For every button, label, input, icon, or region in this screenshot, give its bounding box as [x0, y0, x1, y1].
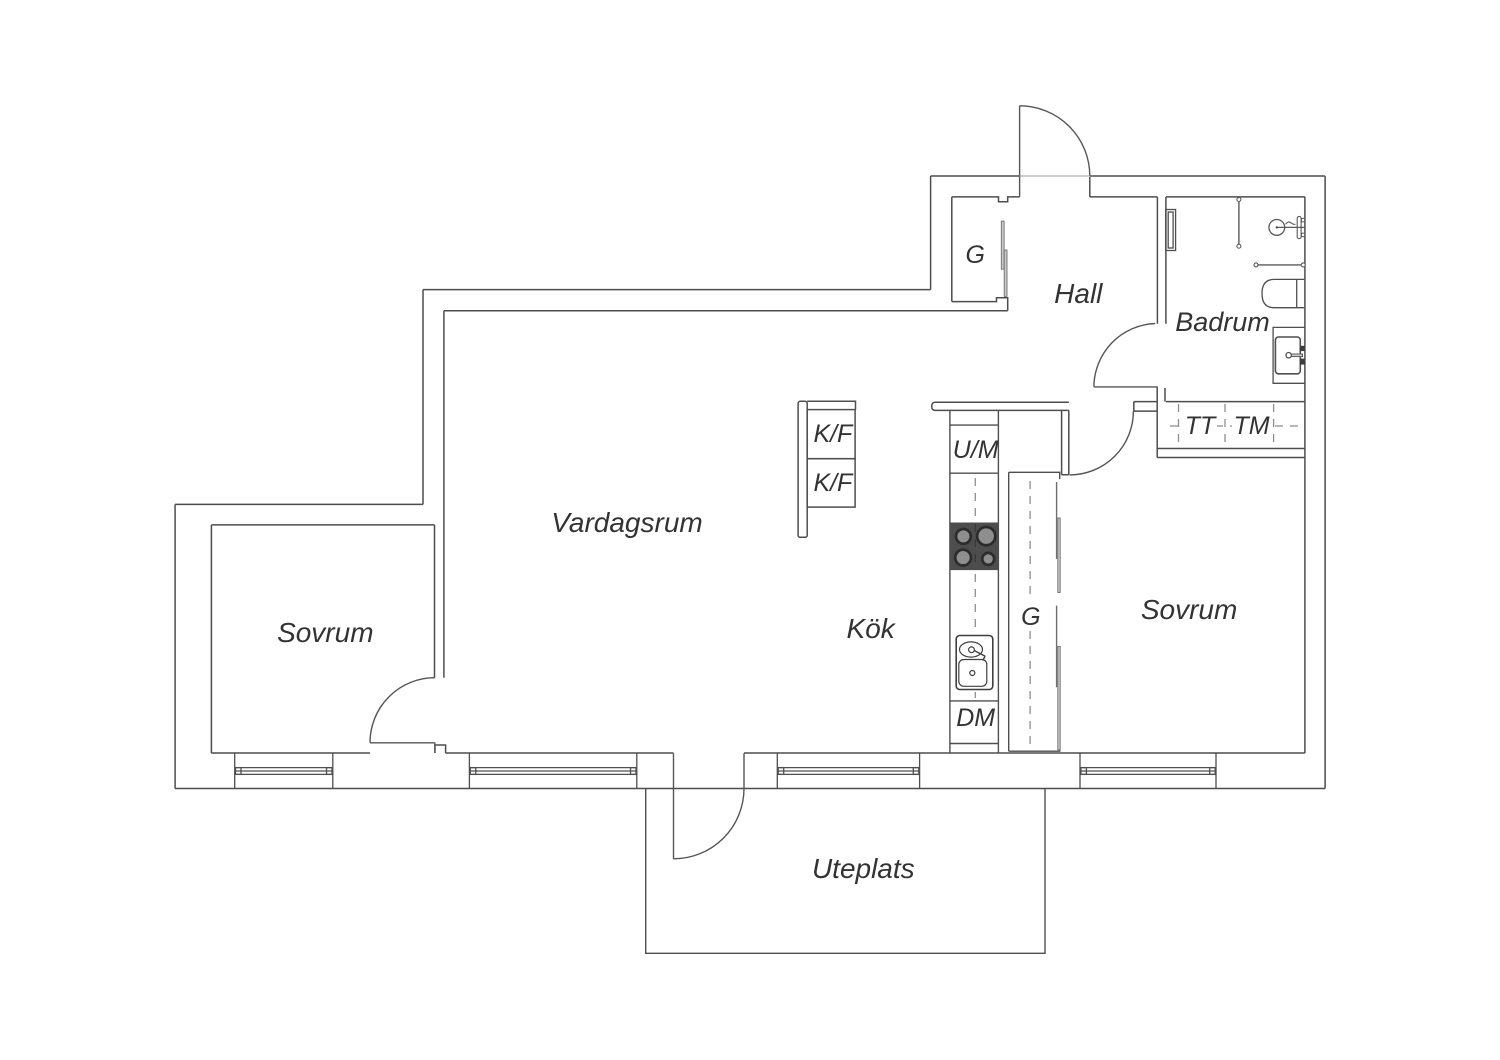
svg-text:TT: TT: [1185, 412, 1217, 440]
svg-text:Vardagsrum: Vardagsrum: [551, 507, 702, 538]
svg-text:Hall: Hall: [1054, 278, 1103, 309]
svg-text:Kök: Kök: [846, 613, 896, 644]
svg-text:Sovrum: Sovrum: [1141, 594, 1237, 625]
svg-text:G: G: [965, 241, 984, 269]
svg-text:U/M: U/M: [953, 436, 999, 464]
svg-text:Badrum: Badrum: [1175, 307, 1270, 337]
svg-text:Uteplats: Uteplats: [812, 853, 915, 884]
svg-text:K/F: K/F: [813, 469, 854, 497]
svg-text:K/F: K/F: [813, 420, 854, 448]
svg-text:TM: TM: [1233, 412, 1269, 440]
svg-text:DM: DM: [956, 704, 995, 732]
svg-text:G: G: [1021, 603, 1040, 631]
svg-text:Sovrum: Sovrum: [277, 617, 373, 648]
